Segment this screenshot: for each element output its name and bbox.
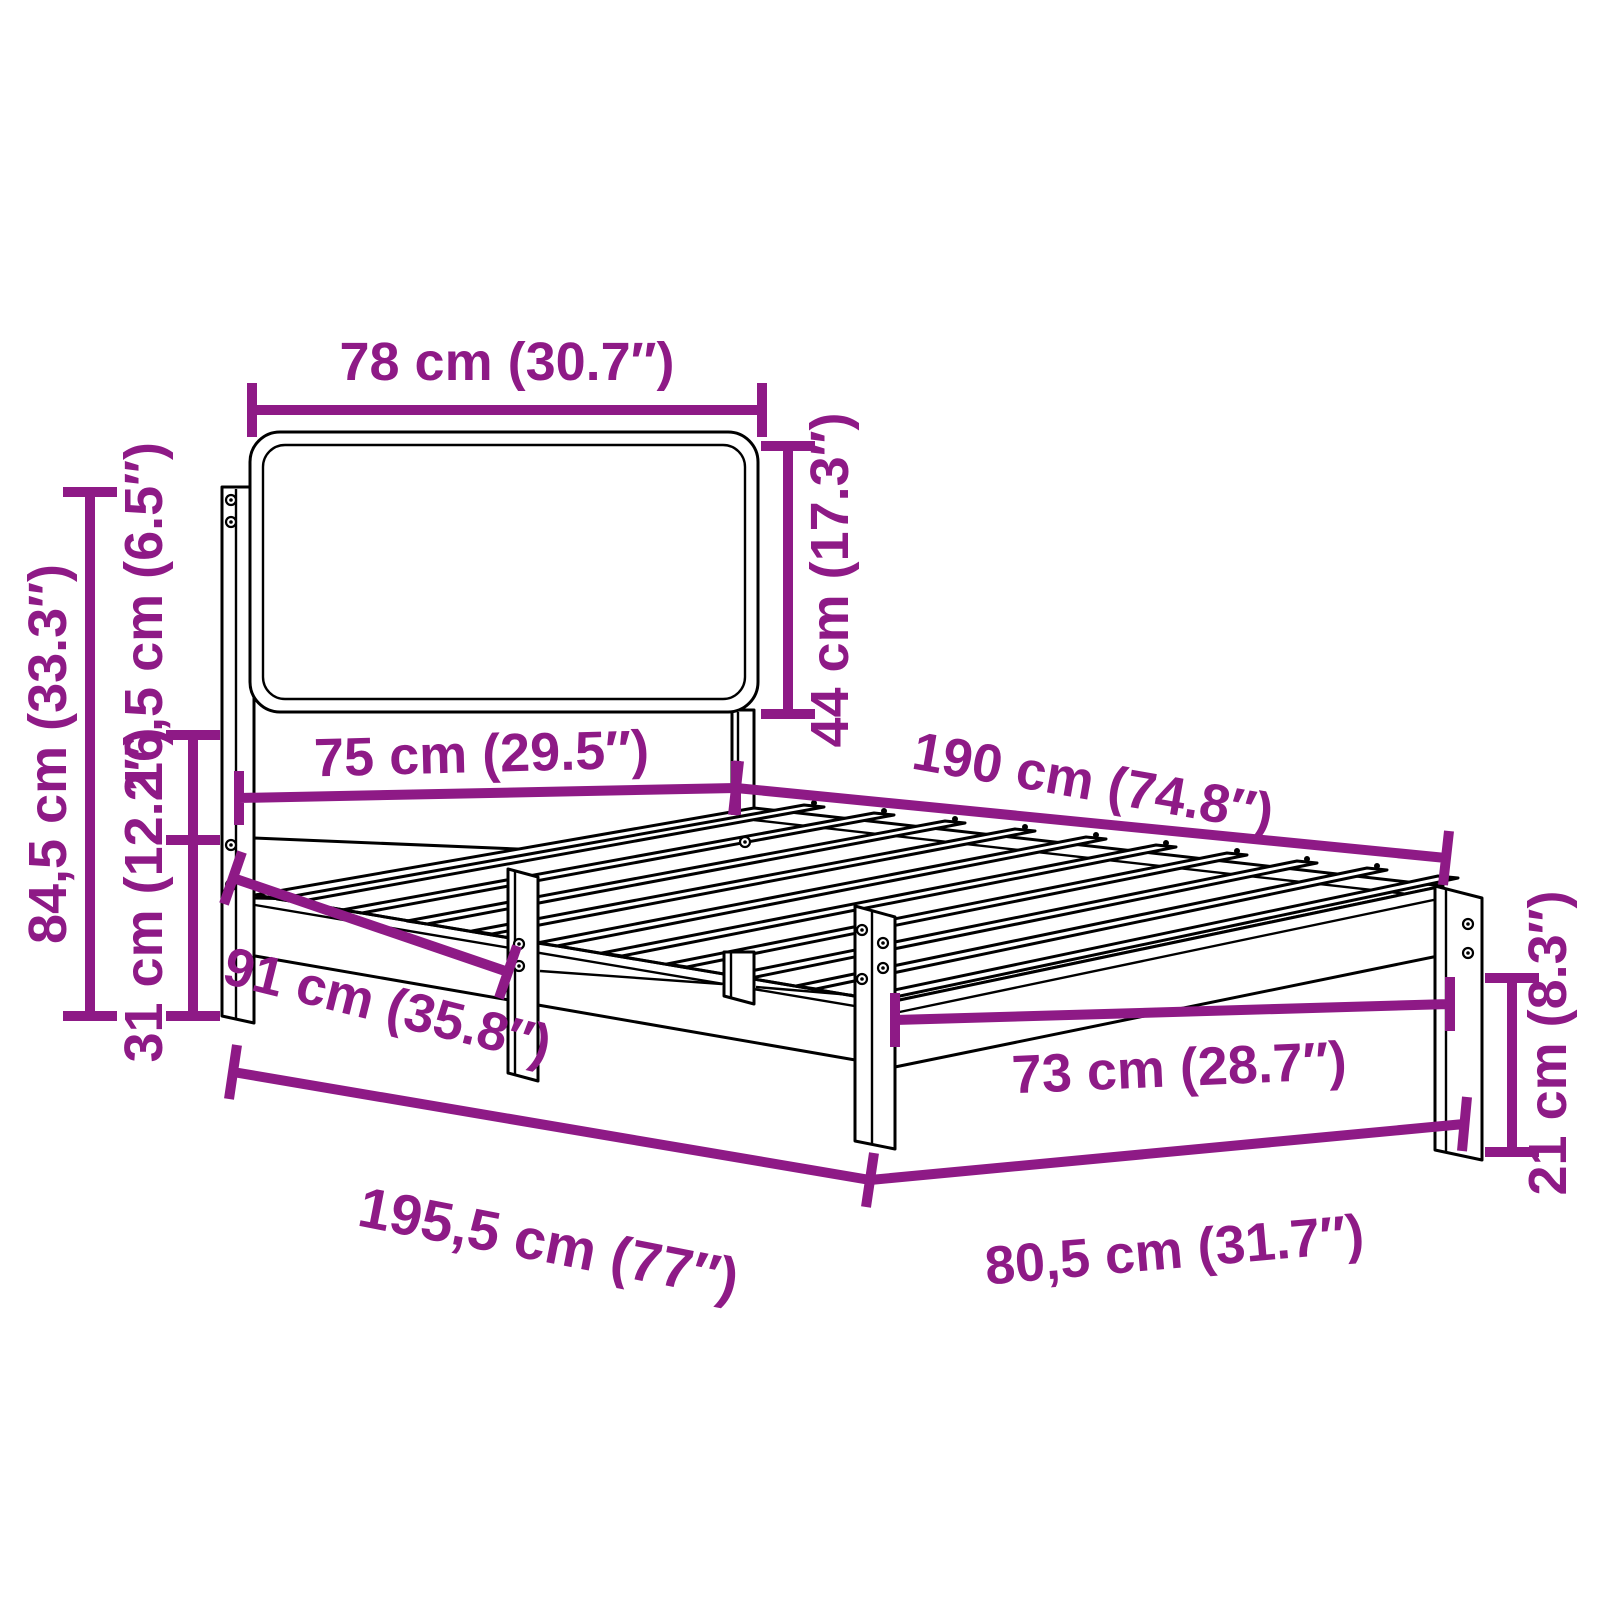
screw-icon (1463, 948, 1473, 958)
dimension-label-foot-overall-width: 80,5 cm (31.7″) (982, 1204, 1366, 1297)
screw-icon (226, 840, 236, 850)
leg-head-far (724, 952, 754, 1004)
leg-foot-far (1435, 886, 1482, 1160)
dimension-line (229, 1045, 874, 1207)
dimension-overall-height: 84,5 cm (33.3″) (18, 492, 117, 1016)
dimension-foot-overall-width: 80,5 cm (31.7″) (870, 1097, 1467, 1297)
screw-icon (857, 974, 867, 984)
dimension-overall-length: 195,5 cm (77″) (229, 1045, 874, 1312)
screw-icon (878, 963, 888, 973)
screw-icon (1463, 919, 1473, 929)
diagram-canvas: 78 cm (30.7″) 44 cm (17.3″) 75 cm (29.5″… (0, 0, 1600, 1600)
dimension-foot-leg-height: 21 cm (8.3″) (1485, 890, 1578, 1195)
dimension-label-foot-inner-width: 73 cm (28.7″) (1011, 1031, 1348, 1106)
screw-icon (857, 925, 867, 935)
dimension-label-headboard-width: 78 cm (30.7″) (339, 332, 674, 392)
screw-icon (740, 837, 750, 847)
dimension-label-headboard-panel-height: 44 cm (17.3″) (800, 412, 860, 747)
dimension-label-base-height: 31 cm (12.2″) (114, 727, 174, 1062)
dimension-line (166, 840, 220, 1016)
dimension-headboard-inner-width: 75 cm (29.5″) (239, 720, 736, 825)
screw-icon (878, 938, 888, 948)
dimension-headboard-panel-height: 44 cm (17.3″) (761, 412, 860, 747)
dimension-label-headboard-inner-width: 75 cm (29.5″) (313, 720, 650, 789)
dimension-label-post-to-front-leg: 91 cm (35.8″) (218, 936, 558, 1075)
headboard-cushion (250, 432, 758, 712)
dimension-label-overall-length: 195,5 cm (77″) (353, 1175, 744, 1311)
dimension-base-height: 31 cm (12.2″) (114, 727, 220, 1062)
dimension-headboard-width: 78 cm (30.7″) (252, 332, 762, 437)
dimension-line (870, 1097, 1467, 1180)
dimension-label-overall-height: 84,5 cm (33.3″) (18, 564, 78, 944)
dimension-label-foot-leg-height: 21 cm (8.3″) (1518, 890, 1578, 1195)
screw-icon (226, 517, 236, 527)
screw-icon (226, 495, 236, 505)
bed-frame-dimension-diagram: 78 cm (30.7″) 44 cm (17.3″) 75 cm (29.5″… (0, 0, 1600, 1600)
dimension-line (166, 735, 220, 840)
